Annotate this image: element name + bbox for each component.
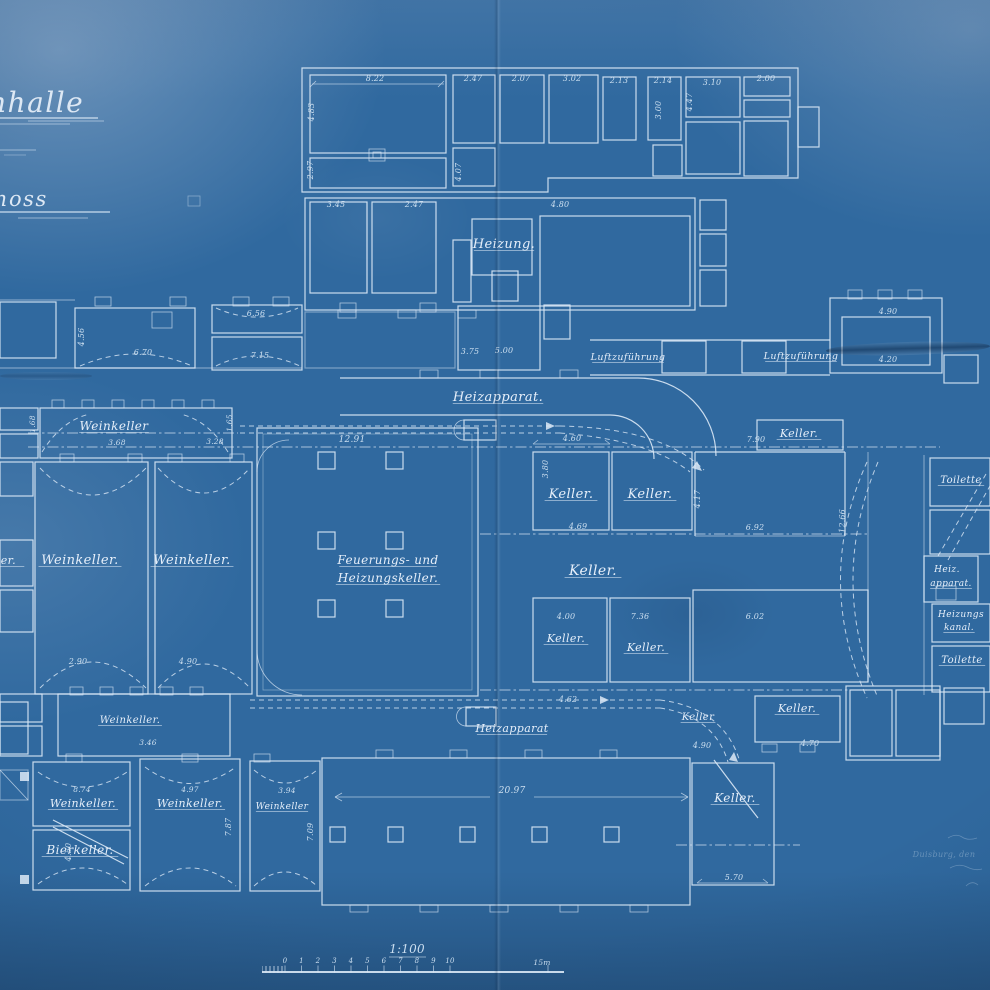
duct-line [240,426,560,433]
paper-crease-left [0,372,92,380]
scale-tick-label: 3 [332,957,337,965]
scale-tick-label: 1 [299,957,304,965]
dimension-label: 4.47 [685,92,694,112]
room-label: kanal. [944,623,974,633]
room-label: Heizapparat [474,722,548,735]
scale-tick-label: 4 [348,957,354,965]
vault-arc [158,468,250,493]
signature-squiggle [966,883,978,886]
dimension-label: 3.02 [563,74,582,83]
dimension-label: 3.94 [278,786,296,795]
dimension-label: 7.15 [251,351,270,360]
title-fragment: nhalle [0,86,84,119]
room-label: Keller. [548,487,594,502]
room-label: Weinkeller [256,802,309,812]
staircase [944,688,984,724]
flue-line [938,474,990,560]
dimension-label: 6.70 [134,348,153,357]
dimension-label: 20.97 [498,786,526,796]
dimension-label: 2.90 [68,657,88,666]
door-arc [257,440,289,472]
room-label: eller. [0,554,16,567]
column [318,452,335,469]
door-detail [369,149,385,161]
room-label: Keller. [546,632,585,645]
vault-arc [254,770,317,783]
dimension-label: 7.36 [631,612,650,621]
vault-arc [145,868,236,886]
scale-ticks: 012345678910 [283,957,455,973]
dimension-label: 3.68 [108,438,126,447]
dimension-label: 8.74 [73,785,91,794]
dimension-label: 2.97 [306,160,315,180]
column [330,827,345,842]
scale-ratio: 1:100 [389,942,425,956]
dimension-label: 4.83 [307,103,316,123]
blueprint-page: nhalle hoss [0,0,990,990]
staircase [850,690,892,756]
room-label: Heizungs [937,610,984,620]
scale-tick-label: 5 [365,957,370,965]
dimension-label: 7.90 [747,435,766,444]
paper-fold-vertical [494,0,501,990]
dimension-label: 4.50 [64,843,73,863]
staircase [798,107,819,147]
column [386,600,403,617]
column [386,452,403,469]
dimension-label: 4.69 [568,522,588,531]
dimension-label: 12.66 [838,509,847,533]
dimension-label: 1.68 [28,415,37,433]
staircase [453,240,471,302]
hatched-cell [653,145,682,176]
dimension-label: 2.14 [653,76,673,85]
dimension-label: 4.90 [692,741,712,750]
column [532,827,547,842]
bottom-hall [322,750,800,912]
dimension-label: 3.46 [139,738,157,747]
flow-arrow [729,752,738,762]
vault-arc [40,662,146,688]
room-label: Weinkeller. [41,553,118,568]
column [318,532,335,549]
door-arc [257,650,302,695]
room-label: Heizung. [472,237,535,252]
column [386,532,403,549]
dimension-label: 6.02 [746,612,765,621]
dimension-label: 4.80 [550,200,570,209]
dimension-label: 3.75 [461,347,480,356]
dimension-label: 7.87 [224,817,233,836]
dimension-label: 6.56 [247,309,266,318]
vault-arc [145,767,236,784]
room-label: Luftzuführung [763,351,839,362]
room-label: Bierkeller. [45,843,113,857]
duct-line [660,700,740,762]
dimension-label: 4.56 [77,328,86,348]
duct-symbol [464,420,496,440]
mid-top-block [305,198,726,318]
room-label: Weinkeller. [50,797,116,810]
column [460,827,475,842]
column [388,827,403,842]
curved-wall-arc [853,462,878,698]
signature-city-date: Duisburg, den [912,850,976,859]
room-label: Heizungskeller. [337,571,438,585]
dimension-label: 2.07 [511,74,531,83]
dimension-label: 4.60 [562,434,582,443]
dimension-label: 2.13 [609,76,629,85]
vault-arc [38,868,127,884]
room-label: Luftzuführung [590,352,666,363]
dimension-label: 2.47 [463,74,483,83]
room-label: Weinkeller. [157,797,223,810]
room-label: Keller. [779,427,818,440]
dimension-label: 1.65 [225,414,234,432]
dimension-label: 6.92 [746,523,765,532]
staircase [944,355,978,383]
room-label: Toilette [941,655,982,666]
dimension-label: 3.10 [703,78,722,87]
column [318,600,335,617]
staircase [0,702,28,754]
air-grate [662,341,706,373]
room-label: Toilette [940,475,981,486]
flow-arrow [546,422,555,430]
dimension-label: 2.47 [404,200,424,209]
vault-arc [254,872,317,886]
duct-line [250,700,660,708]
title-block: nhalle hoss [0,86,110,218]
dimension-label: 4.97 [180,785,199,794]
dimension-label: 3.45 [327,200,346,209]
column [604,827,619,842]
room-label: Keller [681,712,715,723]
room-label: Weinkeller [80,419,150,433]
room-label: Weinkeller. [153,553,230,568]
room-label: Keller. [626,641,665,654]
scale-end-label: 15m [533,958,550,967]
scale-tick-label: 8 [415,957,420,965]
signature-squiggle [948,835,977,839]
dimension-label: 7.09 [306,823,315,842]
scale-tick-label: 7 [398,957,403,965]
scale-tick-label: 2 [315,957,321,965]
dimension-label: 4.07 [454,162,463,182]
dimension-label: 4.90 [878,307,898,316]
dimension-label: 3.00 [654,101,663,120]
diagonal-wall [714,760,758,818]
cellar-rooms [533,420,878,698]
dimension-label: 4.17 [693,489,702,509]
room-label: Keller. [627,487,673,502]
room-label: Heiz. [933,565,960,575]
scale-tick-label: 0 [283,957,288,965]
dimension-label: 8.22 [366,74,385,83]
scale-bar: 012345678910 1:100 15m [262,942,564,973]
dimension-label: 4.00 [556,612,576,621]
scale-tick-label: 6 [382,957,387,965]
dimension-label: 12.91 [339,435,366,445]
room-label: Keller. [568,563,617,579]
staircase [0,302,56,358]
top-wing [188,68,819,206]
scale-tick-label: 9 [431,957,436,965]
room-label: Weinkeller. [100,715,161,726]
scale-tick-label: 10 [445,957,455,965]
dimension-label: 5.70 [725,873,744,882]
step-detail [152,312,172,328]
room-label: apparat. [930,579,972,589]
dimension-label: 4.20 [878,355,898,364]
signature-squiggle [950,865,982,869]
room-label: Keller. [713,791,756,805]
room-label: Feuerungs- und [336,553,438,567]
dimension-label: 2.00 [756,74,776,83]
middle-band [0,290,978,383]
signature-block: Duisburg, den [912,835,982,886]
dimension-label: 4.70 [800,739,820,748]
dimension-label: 4.90 [178,657,198,666]
duct-line [560,426,704,472]
flow-arrow [600,696,609,704]
title-fragment: hoss [0,187,48,211]
dimension-label: 4.62 [558,695,578,704]
vault-arc [158,664,250,688]
dimension-label: 3.28 [206,437,224,446]
vault-arc [40,468,146,495]
dimension-label: 3.80 [541,460,550,479]
scale-subdivisions [262,966,284,973]
room-label: Keller. [777,702,816,715]
